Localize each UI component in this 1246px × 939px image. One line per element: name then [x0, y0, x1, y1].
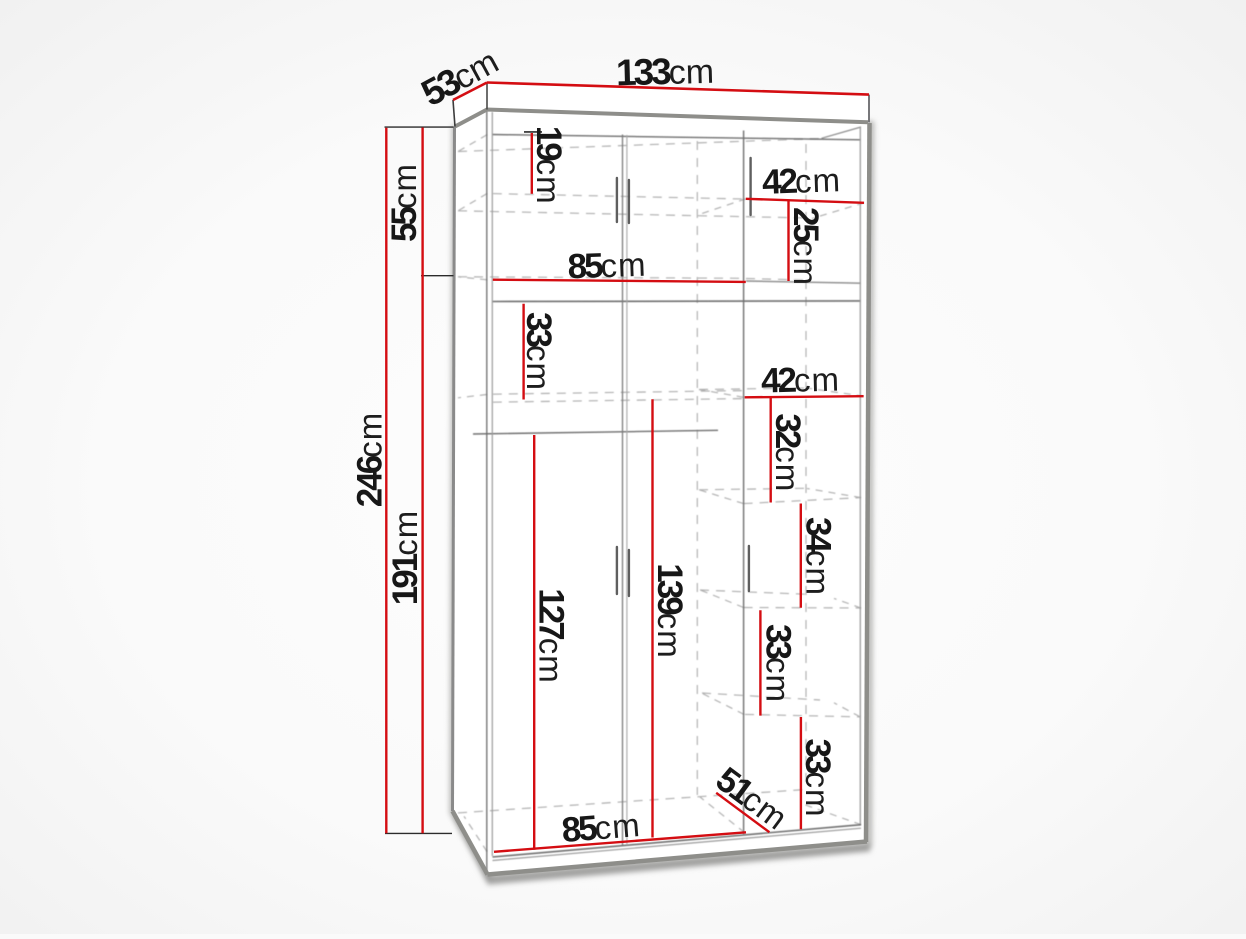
svg-text:246cm: 246cm [351, 412, 390, 507]
svg-text:85cm: 85cm [567, 245, 647, 287]
svg-text:19cm: 19cm [529, 126, 568, 205]
svg-text:55cm: 55cm [385, 163, 424, 242]
svg-text:139cm: 139cm [650, 563, 689, 658]
svg-text:25cm: 25cm [786, 207, 825, 286]
svg-text:32cm: 32cm [768, 413, 807, 492]
svg-text:85cm: 85cm [560, 805, 642, 850]
svg-text:34cm: 34cm [799, 517, 838, 596]
svg-text:127cm: 127cm [532, 588, 571, 683]
svg-text:42cm: 42cm [761, 160, 841, 202]
svg-text:33cm: 33cm [519, 312, 558, 391]
svg-text:42cm: 42cm [761, 359, 841, 400]
svg-text:133cm: 133cm [615, 50, 714, 94]
svg-text:33cm: 33cm [759, 624, 798, 703]
svg-text:191cm: 191cm [386, 510, 425, 605]
svg-text:33cm: 33cm [798, 739, 837, 818]
